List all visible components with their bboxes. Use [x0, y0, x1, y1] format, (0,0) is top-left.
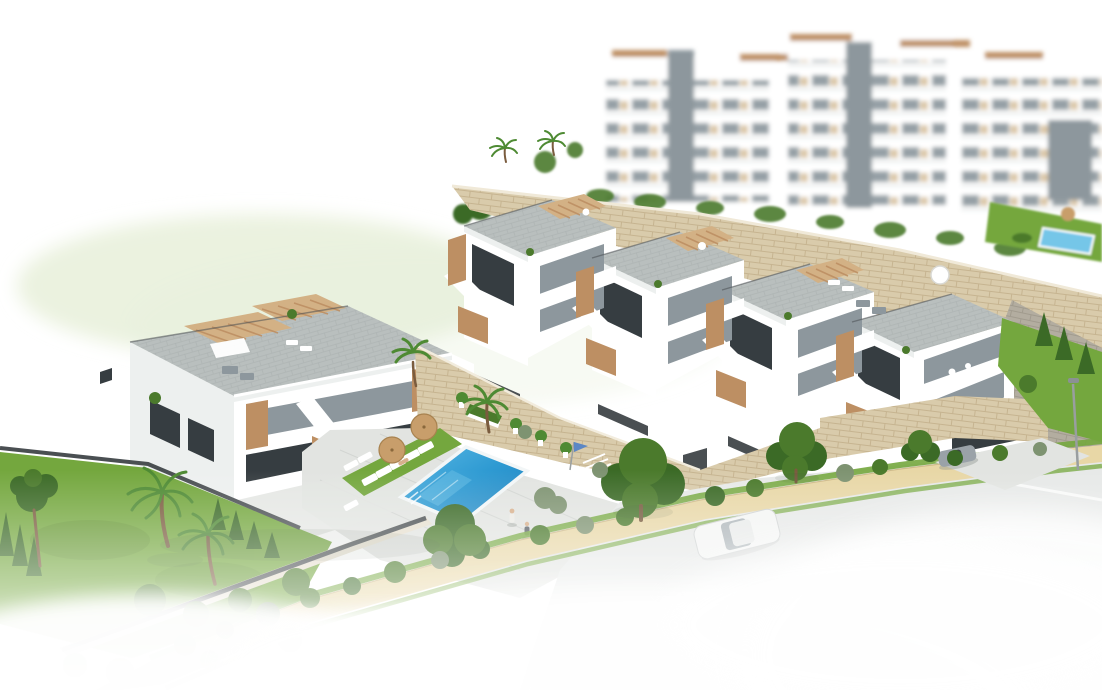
render-canvas	[0, 0, 1102, 690]
background-parasol	[1061, 207, 1075, 221]
terrace-parasol-white	[931, 266, 949, 284]
